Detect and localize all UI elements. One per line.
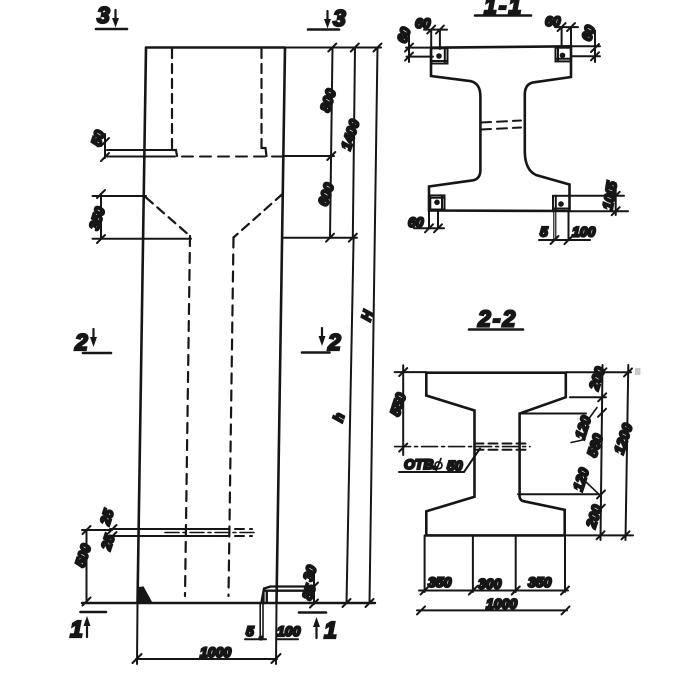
svg-text:1: 1 — [70, 616, 85, 642]
svg-text:600: 600 — [315, 181, 338, 208]
svg-text:ОТВ.: ОТВ. — [404, 456, 437, 472]
svg-text:3: 3 — [97, 2, 112, 28]
svg-text:800: 800 — [317, 87, 340, 114]
svg-text:h: h — [330, 411, 348, 424]
svg-text:200: 200 — [585, 365, 608, 393]
svg-text:2: 2 — [327, 329, 343, 355]
svg-text:2-2: 2-2 — [477, 306, 517, 332]
svg-text:120: 120 — [570, 466, 593, 493]
svg-text:5: 5 — [246, 623, 254, 639]
svg-text:1400: 1400 — [338, 117, 363, 152]
svg-text:2: 2 — [74, 329, 90, 355]
svg-text:350: 350 — [428, 574, 452, 590]
svg-text:30: 30 — [300, 563, 320, 583]
svg-text:60: 60 — [545, 13, 561, 29]
svg-text:100: 100 — [572, 224, 596, 240]
svg-text:1000: 1000 — [200, 644, 231, 660]
svg-text:5: 5 — [540, 224, 548, 240]
svg-text:1: 1 — [324, 617, 339, 643]
svg-text:500: 500 — [72, 542, 95, 569]
svg-text:350: 350 — [528, 574, 552, 590]
svg-text:25: 25 — [96, 507, 116, 528]
svg-text:350: 350 — [86, 205, 109, 232]
svg-text:100: 100 — [277, 623, 301, 639]
svg-text:60: 60 — [394, 25, 414, 45]
svg-text:550: 550 — [387, 391, 410, 418]
svg-text:60: 60 — [415, 15, 431, 31]
svg-text:1000: 1000 — [486, 596, 517, 612]
svg-text:1200: 1200 — [611, 421, 636, 456]
svg-text:3: 3 — [333, 5, 348, 31]
svg-text:60: 60 — [408, 214, 424, 230]
svg-text:200: 200 — [582, 503, 605, 531]
svg-text:300: 300 — [478, 576, 502, 592]
